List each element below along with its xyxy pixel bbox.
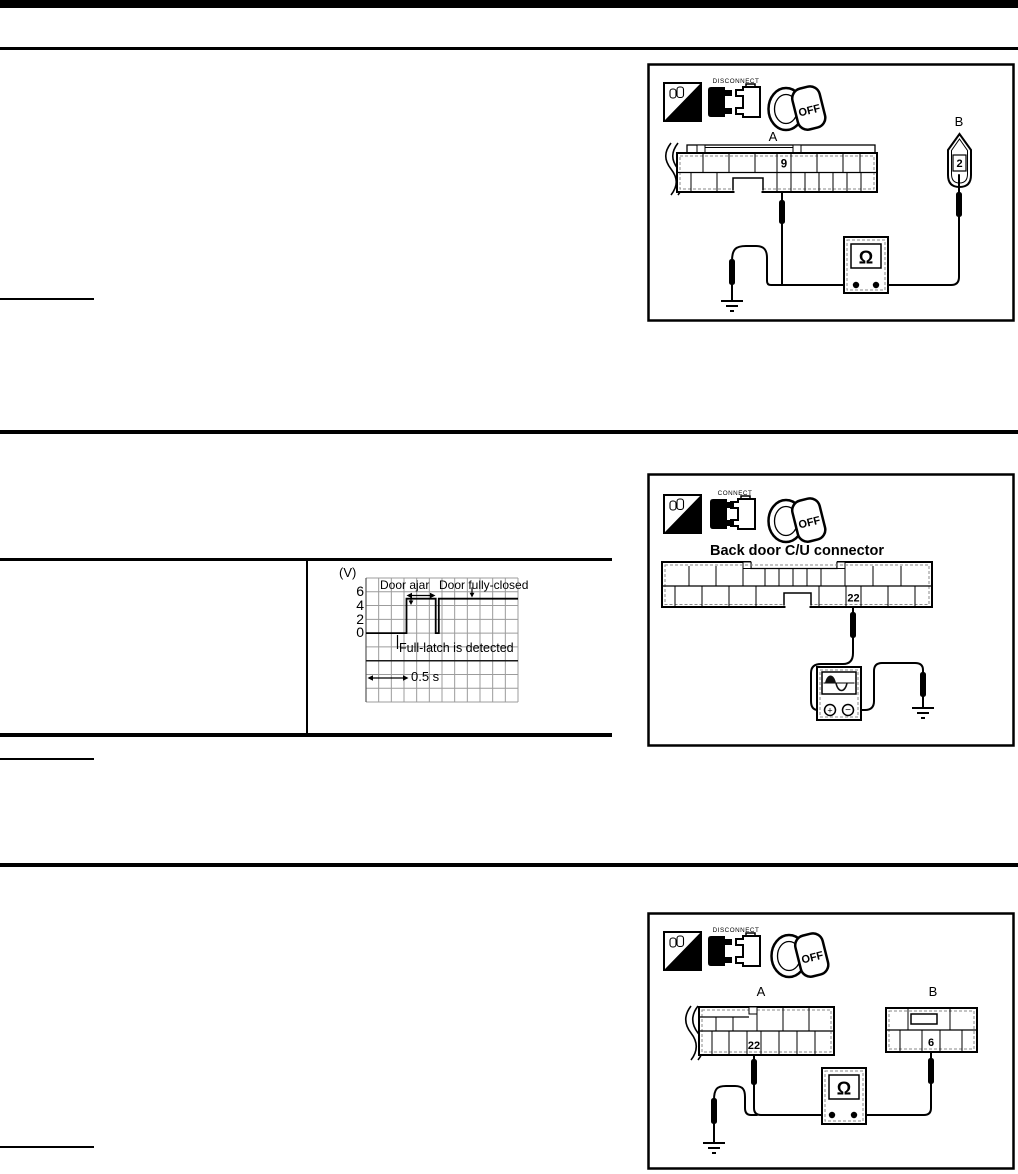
connector-notch xyxy=(784,593,811,606)
pin-6-label: 6 xyxy=(928,1037,934,1049)
plus-terminal-label: + xyxy=(827,706,832,716)
y-axis-unit-label: (V) xyxy=(339,565,356,580)
hs-icon-label: H.S. xyxy=(678,520,696,531)
ignition-off-icon: OFF xyxy=(769,496,828,544)
pin-22-label: 22 xyxy=(748,1040,760,1052)
ohmmeter-icon: Ω xyxy=(822,1068,866,1124)
diagram-box-continuity-check-2: H.S. DISCONNECT OFF A B xyxy=(647,912,1015,1170)
connector-a: 9 xyxy=(677,145,877,194)
y-tick-0: 0 xyxy=(344,624,364,640)
probe-icon xyxy=(850,612,856,638)
connector-a-label: A xyxy=(757,984,766,999)
connector-b: 6 xyxy=(886,1008,977,1052)
section-rule-2 xyxy=(0,430,1018,434)
top-header-bar xyxy=(0,0,1018,8)
connector-a-label: A xyxy=(769,129,778,144)
connector-a: 22 xyxy=(699,1007,834,1055)
pin-2-label: 2 xyxy=(956,158,962,170)
full-latch-label: Full-latch is detected xyxy=(399,641,514,655)
short-underline-3 xyxy=(0,1146,94,1148)
connector-slot xyxy=(911,1014,937,1024)
probe-icon xyxy=(928,1058,934,1084)
section-rule-3 xyxy=(0,863,1018,867)
ohm-symbol: Ω xyxy=(837,1079,851,1099)
ohm-symbol: Ω xyxy=(859,248,873,268)
short-underline-1 xyxy=(0,298,94,300)
time-division-label: 0.5 s xyxy=(411,669,439,684)
table-column-divider xyxy=(306,558,308,737)
ignition-off-icon: OFF xyxy=(769,84,828,132)
probe-icon xyxy=(920,672,926,697)
oscilloscope-grid xyxy=(366,578,518,702)
manual-page: (V) 6 4 2 0 Door ajar Door fully-closed … xyxy=(0,0,1018,1174)
diagram-box-voltage-check: H.S. CONNECT OFF xyxy=(647,473,1015,747)
section-rule-1 xyxy=(0,47,1018,50)
pin-22-label: 22 xyxy=(847,593,859,605)
pin-9-label: 9 xyxy=(781,159,787,171)
connector-notch xyxy=(733,178,763,191)
oscilloscope-meter-icon: + − xyxy=(817,667,861,720)
connector-title: Back door C/U connector xyxy=(710,543,884,559)
hs-icon-label: H.S. xyxy=(678,108,696,119)
ignition-off-icon: OFF xyxy=(772,931,831,979)
table-bottom-border xyxy=(0,733,612,737)
probe-icon xyxy=(729,259,735,285)
door-ajar-label: Door ajar xyxy=(380,578,429,592)
diagram-box-continuity-check-1: H.S. DISCONNECT OFF A xyxy=(647,63,1015,322)
time-division-arrow xyxy=(368,675,409,680)
hs-icon: H.S. xyxy=(664,83,701,121)
connector-b-label: B xyxy=(929,984,938,999)
probe-icon xyxy=(751,1059,757,1085)
hs-icon: H.S. xyxy=(664,932,701,970)
probe-icon xyxy=(956,192,962,217)
probe-icon xyxy=(711,1098,717,1124)
probe-icon xyxy=(779,200,785,224)
hs-icon: H.S. xyxy=(664,495,701,533)
minus-terminal-label: − xyxy=(845,705,851,716)
door-fully-closed-label: Door fully-closed xyxy=(439,578,528,592)
ohmmeter-icon: Ω xyxy=(844,237,888,293)
short-underline-2 xyxy=(0,758,94,760)
connector-b-label: B xyxy=(955,114,964,129)
back-door-cu-connector: 22 xyxy=(662,561,932,610)
waveform-chart: (V) 6 4 2 0 Door ajar Door fully-closed … xyxy=(336,566,568,716)
hs-icon-label: H.S. xyxy=(678,957,696,968)
